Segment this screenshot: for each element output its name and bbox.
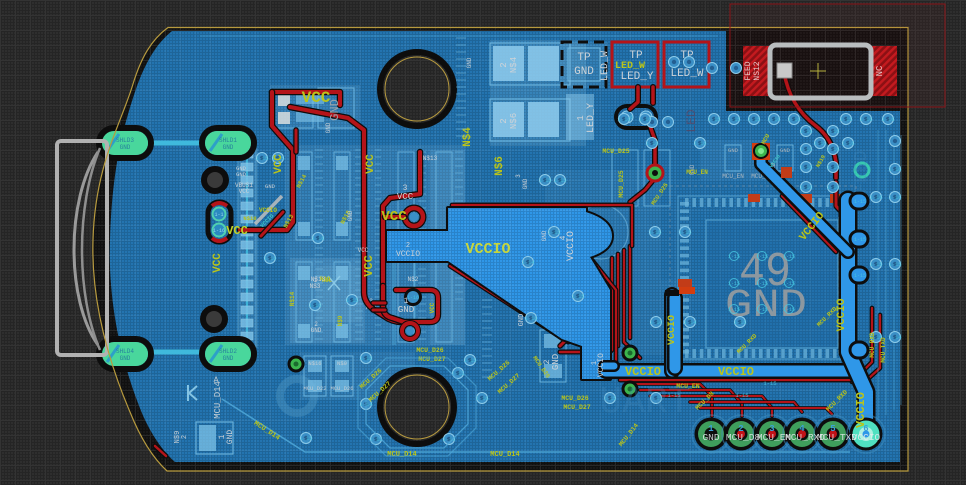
svg-text:TP: TP <box>577 52 591 64</box>
svg-text:GND: GND <box>574 66 594 78</box>
svg-text:GND: GND <box>328 99 342 121</box>
svg-text:GND: GND <box>325 122 332 133</box>
svg-text:SHLD4: SHLD4 <box>116 348 134 355</box>
svg-text:LED: LED <box>684 109 699 133</box>
svg-text:1-15: 1-15 <box>869 261 882 268</box>
svg-text:1-16: 1-16 <box>881 116 894 123</box>
svg-text:MCU_D26: MCU_D26 <box>416 347 443 354</box>
svg-text:GND: GND <box>728 147 739 154</box>
svg-text:1-15: 1-15 <box>747 116 760 123</box>
svg-text:LED_W: LED_W <box>600 51 611 81</box>
svg-text:2: 2 <box>499 62 509 67</box>
svg-text:1-16: 1-16 <box>645 140 658 147</box>
svg-text:1-15: 1-15 <box>854 199 866 205</box>
svg-text:1-15: 1-15 <box>345 297 358 304</box>
svg-text:1-14: 1-14 <box>888 334 902 341</box>
svg-text:GND: GND <box>311 327 322 334</box>
svg-text:1-15: 1-15 <box>727 116 740 123</box>
svg-text:VCCIO: VCCIO <box>625 365 661 379</box>
svg-text:1-16: 1-16 <box>263 255 276 262</box>
svg-text:N$13: N$13 <box>423 155 438 162</box>
svg-text:MCU_EN: MCU_EN <box>722 173 744 180</box>
svg-text:1-15: 1-15 <box>538 177 551 184</box>
svg-text:1-15: 1-15 <box>728 307 740 313</box>
svg-text:VCCIO: VCCIO <box>259 207 277 214</box>
svg-text:N$9: N$9 <box>174 431 182 444</box>
svg-text:1-14: 1-14 <box>521 259 535 266</box>
svg-text:1-15: 1-15 <box>678 229 691 236</box>
svg-text:1-15: 1-15 <box>707 116 720 123</box>
svg-text:VCC: VCC <box>365 154 377 174</box>
svg-text:1-15: 1-15 <box>854 273 866 279</box>
svg-text:1-15: 1-15 <box>783 281 795 287</box>
svg-text:VCCIO: VCCIO <box>566 231 577 261</box>
svg-text:MCU_D22: MCU_D22 <box>303 385 326 392</box>
svg-text:VCC: VCC <box>358 247 369 254</box>
svg-text:1-15: 1-15 <box>299 435 312 442</box>
svg-text:GND: GND <box>466 57 473 68</box>
svg-text:GND: GND <box>236 171 247 178</box>
svg-text:LED_Y: LED_Y <box>586 103 597 133</box>
svg-text:1-16: 1-16 <box>826 128 839 135</box>
svg-text:1-15: 1-15 <box>888 261 901 268</box>
svg-text:VCCIO: VCCIO <box>597 353 606 377</box>
svg-text:1-15: 1-15 <box>255 155 268 162</box>
svg-text:MCU_D27: MCU_D27 <box>418 356 445 363</box>
svg-text:SHLD2: SHLD2 <box>219 348 237 355</box>
svg-text:SHLD3: SHLD3 <box>116 137 134 144</box>
svg-text:VCC: VCC <box>226 224 248 238</box>
svg-text:1-15: 1-15 <box>648 229 661 236</box>
svg-text:SHLD1: SHLD1 <box>219 137 237 144</box>
svg-text:VCC: VCC <box>397 192 414 202</box>
svg-text:GND: GND <box>120 355 131 362</box>
svg-text:2: 2 <box>181 435 189 439</box>
svg-text:VCC: VCC <box>239 188 250 195</box>
svg-text:1-15: 1-15 <box>756 307 768 313</box>
svg-text:1-15: 1-15 <box>553 177 566 184</box>
svg-text:VCCIO: VCCIO <box>465 241 510 258</box>
svg-text:MCU_TXD: MCU_TXD <box>880 337 887 363</box>
svg-text:1-16: 1-16 <box>888 166 901 173</box>
svg-text:MCU_D8: MCU_D8 <box>726 432 761 443</box>
svg-text:1-16: 1-16 <box>787 116 800 123</box>
svg-text:MCU_D26: MCU_D26 <box>330 385 353 392</box>
svg-text:1-16: 1-16 <box>813 140 826 147</box>
svg-text:1-16: 1-16 <box>213 228 225 234</box>
svg-text:4: 4 <box>559 235 568 240</box>
svg-text:N$16: N$16 <box>308 360 321 367</box>
svg-text:VCC: VCC <box>273 154 285 174</box>
svg-text:1-15: 1-15 <box>854 237 866 243</box>
svg-text:1-15: 1-15 <box>783 307 795 313</box>
svg-text:GND: GND <box>347 210 354 221</box>
svg-text:1-16: 1-16 <box>475 395 488 402</box>
svg-text:MCU_EN: MCU_EN <box>686 169 708 176</box>
svg-text:GND: GND <box>398 305 414 315</box>
svg-text:MCU_D25: MCU_D25 <box>602 148 629 155</box>
svg-text:N$9: N$9 <box>337 360 347 367</box>
svg-text:GND: GND <box>541 230 548 241</box>
svg-text:1-15: 1-15 <box>547 229 560 236</box>
svg-text:1-16: 1-16 <box>524 315 537 322</box>
svg-text:1-16: 1-16 <box>638 116 651 123</box>
svg-text:MCU_D27: MCU_D27 <box>563 404 590 411</box>
svg-text:VCC: VCC <box>212 253 224 273</box>
svg-text:GND: GND <box>522 178 529 189</box>
svg-text:1-15: 1-15 <box>463 357 476 364</box>
svg-text:MCU_D26: MCU_D26 <box>561 395 588 402</box>
svg-text:GND: GND <box>223 355 234 362</box>
svg-text:N$4: N$4 <box>509 57 519 73</box>
svg-text:MCU_D25: MCU_D25 <box>618 170 625 197</box>
svg-text:NC: NC <box>875 65 885 76</box>
svg-text:1-16: 1-16 <box>407 295 419 301</box>
svg-text:1-16: 1-16 <box>826 164 839 171</box>
svg-text:1-16: 1-16 <box>767 116 780 123</box>
svg-text:N$9: N$9 <box>337 315 344 326</box>
svg-text:1-15: 1-15 <box>728 254 740 260</box>
svg-text:MCU_D14: MCU_D14 <box>387 451 416 459</box>
svg-text:1-16: 1-16 <box>799 146 812 153</box>
svg-text:3: 3 <box>515 174 522 178</box>
svg-text:1-16: 1-16 <box>841 140 854 147</box>
svg-text:UART: UART <box>599 381 690 424</box>
svg-text:2: 2 <box>406 242 410 250</box>
svg-text:1-15: 1-15 <box>735 392 748 399</box>
svg-text:N$10: N$10 <box>243 215 256 222</box>
svg-text:VCCIO: VCCIO <box>396 250 420 259</box>
svg-text:1-14: 1-14 <box>683 319 697 326</box>
svg-text:1-15: 1-15 <box>783 254 795 260</box>
svg-text:1-15: 1-15 <box>359 355 372 362</box>
svg-text:1-15: 1-15 <box>733 319 746 326</box>
svg-text:VCCIO: VCCIO <box>852 432 881 443</box>
svg-text:MCU_RXD: MCU_RXD <box>869 332 876 358</box>
svg-text:VCCIO: VCCIO <box>667 315 678 345</box>
svg-text:1-16: 1-16 <box>649 319 662 326</box>
svg-text:N$2: N$2 <box>408 276 419 283</box>
svg-text:1-15: 1-15 <box>728 281 740 287</box>
svg-text:GND: GND <box>223 144 234 151</box>
svg-text:1-16: 1-16 <box>617 116 630 123</box>
svg-text:1-15: 1-15 <box>571 293 584 300</box>
svg-text:GND: GND <box>780 147 791 154</box>
svg-text:N$3: N$3 <box>310 283 321 290</box>
svg-text:FEED: FEED <box>744 61 753 80</box>
svg-text:LED_Y: LED_Y <box>620 71 653 83</box>
svg-text:GND: GND <box>518 314 526 327</box>
svg-text:N$13: N$13 <box>311 276 326 283</box>
svg-text:LED_W: LED_W <box>670 68 703 80</box>
svg-text:1-16: 1-16 <box>869 194 882 201</box>
svg-text:N$6: N$6 <box>509 113 519 129</box>
svg-text:VCC: VCC <box>302 89 331 107</box>
svg-text:1-16: 1-16 <box>311 235 324 242</box>
svg-text:VCC: VCC <box>362 255 376 277</box>
svg-text:1-16: 1-16 <box>859 116 872 123</box>
svg-text:1-16: 1-16 <box>888 194 901 201</box>
svg-text:1-15: 1-15 <box>756 281 768 287</box>
svg-text:N$6: N$6 <box>494 156 506 176</box>
svg-text:1-16: 1-16 <box>693 140 706 147</box>
svg-text:1-16: 1-16 <box>799 128 812 135</box>
svg-text:GND: GND <box>702 432 719 443</box>
svg-text:1-16: 1-16 <box>826 184 839 191</box>
svg-text:N$14: N$14 <box>289 291 296 306</box>
svg-text:1-15: 1-15 <box>756 254 768 260</box>
svg-text:VCCIO: VCCIO <box>854 392 868 428</box>
svg-text:GND: GND <box>265 183 276 190</box>
svg-text:VCCIO: VCCIO <box>718 365 754 379</box>
svg-text:GND: GND <box>551 354 561 370</box>
svg-text:GND: GND <box>120 144 131 151</box>
svg-text:VCCIO: VCCIO <box>836 298 848 331</box>
svg-text:N$4: N$4 <box>462 127 474 147</box>
svg-text:NS12: NS12 <box>753 61 762 80</box>
svg-text:1-16: 1-16 <box>308 302 321 309</box>
svg-text:FEED: FEED <box>852 150 872 193</box>
svg-text:1-16: 1-16 <box>826 146 839 153</box>
svg-text:1-15: 1-15 <box>442 436 455 443</box>
svg-text:MCU_D14: MCU_D14 <box>490 451 519 459</box>
svg-text:2: 2 <box>499 118 509 123</box>
svg-text:1: 1 <box>576 115 586 120</box>
svg-text:1-16: 1-16 <box>799 164 812 171</box>
svg-text:1-1: 1-1 <box>214 212 223 218</box>
svg-text:MCU_D14: MCU_D14 <box>213 381 223 419</box>
svg-text:1-16: 1-16 <box>799 184 812 191</box>
svg-text:1-15: 1-15 <box>763 380 776 387</box>
svg-text:1-15: 1-15 <box>839 116 852 123</box>
svg-text:VCC: VCC <box>381 209 407 225</box>
svg-text:GND: GND <box>226 430 235 445</box>
